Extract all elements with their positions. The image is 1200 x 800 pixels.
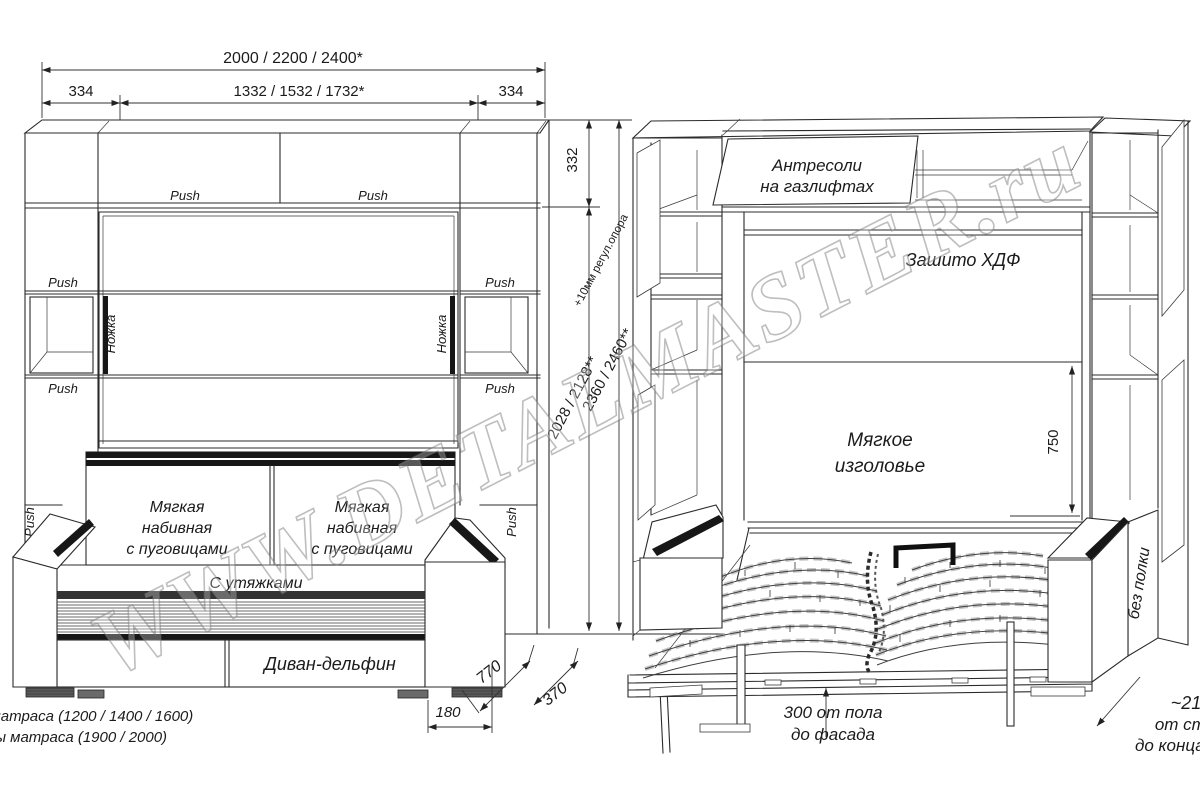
dim-total-width: 2000 / 2200 / 2400* bbox=[223, 50, 363, 67]
headboard-label-l1: Мягкое bbox=[847, 430, 912, 451]
leg-label-right: Ножка bbox=[434, 315, 449, 354]
floor-note-l2: до фасада bbox=[791, 725, 875, 744]
dim-top-width: 2000 / 2200 / 2400* 334 1332 / 1532 / 17… bbox=[42, 50, 545, 122]
watermark-text: WWW.DETALMASTER.ru bbox=[75, 108, 1097, 696]
leg-label-left: Ножка bbox=[103, 315, 118, 354]
push-label-left-col-upper: Push bbox=[48, 275, 78, 290]
dim-side-left: 334 bbox=[68, 83, 93, 100]
open-door-right-upper bbox=[1162, 120, 1184, 316]
footnote-length: ** зависит от длины матраса (1900 / 2000… bbox=[0, 729, 167, 746]
open-door-left-upper bbox=[637, 140, 660, 297]
push-label-right-col-upper: Push bbox=[485, 275, 515, 290]
wall-note-l3: до конца ножек bbox=[1135, 736, 1200, 755]
technical-drawing: 2000 / 2200 / 2400* 334 1332 / 1532 / 17… bbox=[0, 0, 1200, 800]
wall-note-l1: ~2100 bbox=[1171, 693, 1200, 713]
sofa-legs bbox=[26, 688, 502, 698]
dim-side-right: 334 bbox=[498, 83, 523, 100]
push-label-right-strip: Push bbox=[504, 507, 519, 537]
open-armrest-left bbox=[633, 505, 724, 636]
floor-note-l1: 300 от пола bbox=[784, 703, 883, 722]
cushion-left-l1: Мягкая bbox=[150, 499, 205, 516]
wall-distance-note: ~2100 от стены до конца ножек bbox=[1097, 677, 1200, 755]
wall-note-l2: от стены bbox=[1155, 715, 1200, 734]
footnotes: * зависит от ширины матраса (1200 / 1400… bbox=[0, 708, 193, 746]
antresol-label-l1: Антресоли bbox=[771, 156, 863, 175]
drawing-canvas: 2000 / 2200 / 2400* 334 1332 / 1532 / 17… bbox=[0, 0, 1200, 800]
dim-top-section-height: 332 bbox=[564, 147, 581, 172]
bed-handle-center bbox=[896, 545, 953, 568]
push-label-top-left-door: Push bbox=[170, 188, 200, 203]
dim-cabinet-depth: 370 bbox=[539, 679, 571, 709]
dim-center-section: 1332 / 1532 / 1732* bbox=[234, 83, 365, 100]
headboard-label-l2: изголовье bbox=[835, 456, 925, 477]
dim-headboard-height: 750 bbox=[1045, 429, 1062, 454]
open-cabinet-top bbox=[633, 117, 1190, 138]
sofa-type-label: Диван-дельфин bbox=[262, 654, 396, 674]
dim-height-note: +10мм регул.опора bbox=[572, 212, 631, 309]
push-label-left-col-lower: Push bbox=[48, 381, 78, 396]
footnote-width: * зависит от ширины матраса (1200 / 1400… bbox=[0, 708, 193, 725]
dim-base-offset: 180 bbox=[435, 704, 461, 721]
bed-front-panel: Ножка Ножка bbox=[99, 212, 458, 448]
push-label-top-right-door: Push bbox=[358, 188, 388, 203]
antresol-label-l2: на газлифтах bbox=[760, 177, 874, 196]
open-door-right-lower bbox=[1162, 360, 1184, 562]
cushion-left-l2: набивная bbox=[142, 520, 213, 537]
